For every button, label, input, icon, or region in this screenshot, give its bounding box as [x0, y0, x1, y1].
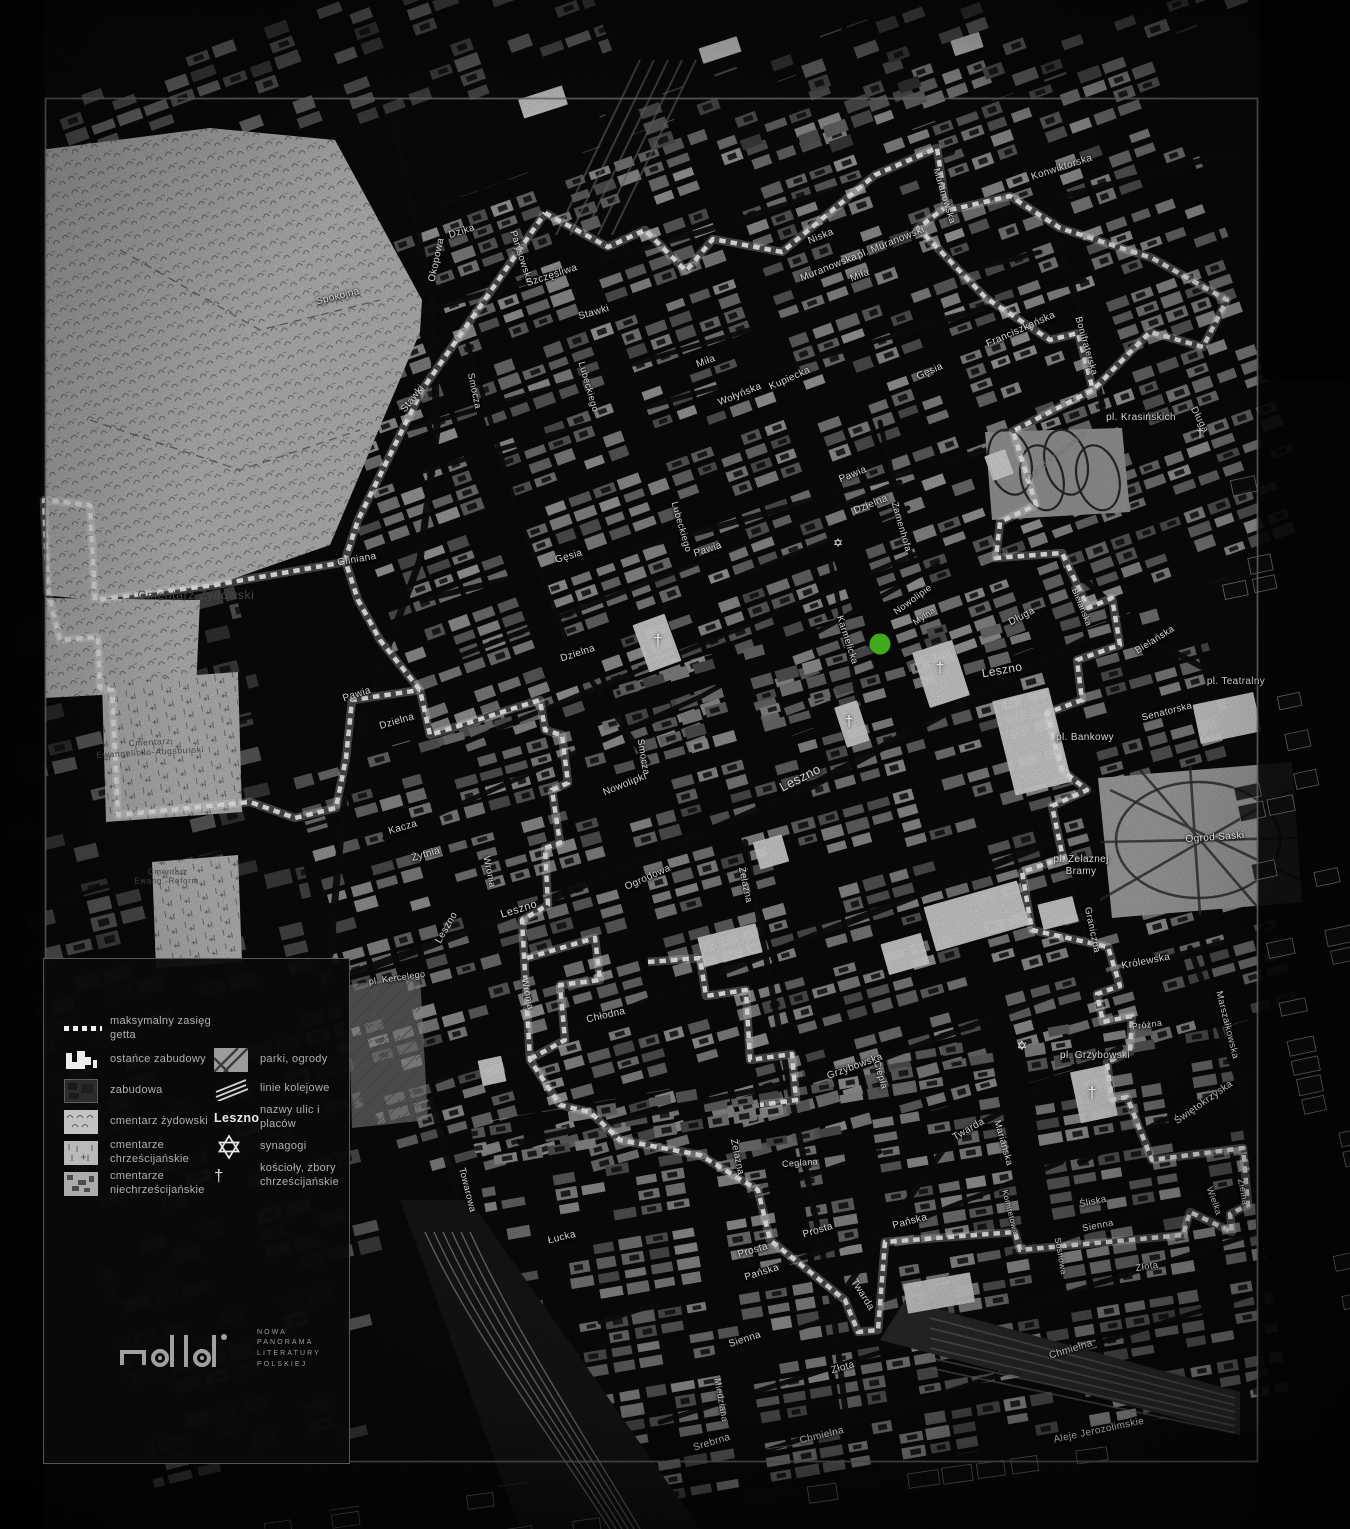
- legend-label-left-0: maksymalny zasięg getta: [110, 1015, 214, 1041]
- street-label: Stawki: [399, 383, 428, 415]
- area-label: Cmentarz Ewangelicko-Augsburski: [96, 734, 205, 760]
- street-label: Karmelicka: [834, 614, 860, 665]
- street-label: Pawia: [837, 464, 868, 486]
- church-icon: †: [845, 714, 853, 731]
- street-label: Nowolipki: [601, 771, 648, 799]
- synagogue-icon: [214, 1133, 260, 1161]
- street-label: Długa: [1007, 605, 1037, 629]
- street-label: pl. Muranowski: [856, 224, 927, 262]
- street-label: Leszno: [981, 659, 1024, 680]
- street-label: Próżna: [1131, 1018, 1163, 1033]
- non-christian-cemeteries-icon: [64, 1172, 110, 1196]
- area-label: Cmentarz Ewang.-Reform.: [134, 868, 202, 887]
- street-label: Chmielna: [1048, 1338, 1095, 1362]
- legend-item-christian-cemeteries: cmentarze chrześcijańskie: [64, 1137, 214, 1168]
- church-icon: †: [936, 660, 944, 677]
- ruin-building-icon: [64, 1047, 110, 1073]
- street-label: Leszno: [433, 910, 460, 946]
- street-sample-icon: Leszno: [214, 1111, 260, 1125]
- street-label: Dzika: [447, 222, 476, 241]
- street-label: Gęsia: [915, 361, 945, 383]
- street-label: Ceglana: [782, 1156, 819, 1169]
- legend-column-right: parki, ogrodylinie kolejoweLesznonazwy u…: [214, 1045, 348, 1190]
- street-label: Dzielna: [378, 711, 416, 732]
- church-icon: †: [1196, 426, 1203, 441]
- christian-cemeteries-icon: [64, 1141, 110, 1165]
- street-label: Leszno: [499, 898, 539, 921]
- legend-label-left-3: cmentarz żydowski: [110, 1115, 208, 1128]
- street-label: Szczęśliwa: [525, 262, 579, 290]
- street-label: Sienna: [1081, 1217, 1114, 1234]
- street-label: Ogrodowa: [623, 863, 673, 894]
- street-label: Kacza: [387, 818, 419, 837]
- street-label: Żelazna: [736, 866, 754, 904]
- street-label: Królewska: [1121, 952, 1172, 973]
- street-label: pl. Żelaznej Bramy: [1053, 854, 1108, 878]
- logo-line-3: LITERATURY: [257, 1350, 321, 1359]
- street-label: Prosta: [801, 1221, 834, 1241]
- street-label: Ogród Krasińskich: [1023, 428, 1089, 482]
- street-label: Złota: [1135, 1260, 1159, 1275]
- railways-icon: [214, 1077, 260, 1101]
- street-label: Twarda: [848, 1277, 877, 1313]
- synagogue-icon: ✡: [1017, 1038, 1028, 1054]
- street-label: Wielka: [1204, 1186, 1224, 1217]
- street-label: Nowolipie: [892, 582, 934, 617]
- legend-label-left-4: cmentarze chrześcijańskie: [110, 1139, 214, 1165]
- street-label: Zielna: [1235, 1178, 1250, 1206]
- street-label: Mylna: [911, 605, 937, 627]
- jewish-cemetery-icon: [64, 1110, 110, 1134]
- legend-label-right-1: linie kolejowe: [260, 1082, 330, 1095]
- street-label: Pańska: [891, 1212, 928, 1233]
- street-label: Grzybowska: [825, 1051, 884, 1082]
- street-label: Leszno: [777, 761, 823, 795]
- legend-label-left-5: cmentarze niechrześcijańskie: [110, 1170, 214, 1196]
- street-label: Gęsia: [554, 547, 584, 566]
- legend-item-ruin-building: ostańce zabudowy: [64, 1044, 214, 1075]
- street-label: Żelazna: [728, 1138, 746, 1176]
- street-label: Łucka: [547, 1229, 577, 1247]
- street-label: Franciszkańska: [985, 309, 1058, 350]
- legend-item-synagogue: synagogi: [214, 1132, 348, 1161]
- street-label: Bonifraterska: [1072, 315, 1099, 376]
- street-label: Wołyńska: [716, 381, 763, 409]
- street-label: Stawki: [577, 303, 611, 323]
- synagogue-icon: ✡: [833, 536, 843, 550]
- ghetto-line-icon: [64, 1026, 110, 1031]
- street-label: Parysowska: [507, 229, 535, 285]
- street-label: Miła: [849, 267, 872, 285]
- street-label: Lubeckiego: [575, 360, 600, 413]
- street-label: Smocza: [634, 738, 651, 776]
- church-icon: †: [214, 1167, 260, 1184]
- street-label: Pawia: [341, 685, 372, 705]
- street-label: Żytnia: [410, 845, 441, 864]
- street-label: Komitetowa: [1000, 1189, 1020, 1235]
- street-label: Spokojna: [315, 286, 361, 308]
- logo-line-4: POLSKIEJ: [257, 1361, 321, 1370]
- logo-line-1: NOWA: [257, 1329, 321, 1338]
- street-name-sample: Leszno: [214, 1111, 259, 1125]
- street-label: Chmielna: [799, 1425, 846, 1447]
- street-label: Senatorska: [1141, 700, 1194, 723]
- logo-line-2: PANORAMA: [257, 1339, 321, 1348]
- street-label: Okopowa: [427, 237, 448, 283]
- street-label: pl. Grzybowski: [1060, 1050, 1130, 1062]
- street-label: Muranowska: [799, 251, 859, 284]
- street-label: Srebrna: [692, 1432, 732, 1454]
- legend-label-left-2: zabudowa: [110, 1084, 163, 1097]
- street-label: Gliniana: [337, 551, 378, 569]
- legend-item-church: †kościoły, zbory chrześcijańskie: [214, 1161, 348, 1190]
- street-label: Pawia: [692, 540, 723, 560]
- legend-item-non-christian-cemeteries: cmentarze niechrześcijańskie: [64, 1168, 214, 1199]
- street-label: pl. Bankowy: [1056, 732, 1114, 744]
- street-label: Wronia: [480, 855, 498, 889]
- street-label: Chłodna: [585, 1006, 626, 1026]
- map-canvas: DzikaOkopowaSpokojnaParysowskaSzczęśliwa…: [0, 0, 1350, 1529]
- street-label: Miła: [695, 353, 718, 371]
- nplp-logo-text: NOWA PANORAMA LITERATURY POLSKIEJ: [257, 1329, 321, 1370]
- street-label: Niska: [806, 227, 835, 248]
- street-label: Zamenhofa: [889, 501, 914, 553]
- nplp-logo-glyphs: [118, 1325, 243, 1373]
- nplp-logo: NOWA PANORAMA LITERATURY POLSKIEJ: [118, 1325, 321, 1373]
- legend-label-right-2: nazwy ulic i placów: [260, 1104, 348, 1130]
- street-label: Twarda: [951, 1116, 987, 1144]
- street-label: Marszałkowska: [1213, 990, 1241, 1060]
- street-label: Muranowska: [930, 167, 957, 225]
- street-label: Długa: [1187, 405, 1211, 435]
- green-location-marker[interactable]: [870, 634, 891, 655]
- street-label: Złota: [830, 1359, 856, 1377]
- street-label: pl. Teatralny: [1207, 676, 1265, 688]
- legend-item-built-up: zabudowa: [64, 1075, 214, 1106]
- street-label: Kupiecka: [768, 365, 813, 394]
- street-label: Ciepła: [871, 1059, 890, 1090]
- street-label: Dzielna: [559, 643, 597, 665]
- legend-item-railways: linie kolejowe: [214, 1074, 348, 1103]
- legend-item-parks: parki, ogrody: [214, 1045, 348, 1074]
- street-label: Bielańska: [1133, 624, 1177, 657]
- legend-label-right-3: synagogi: [260, 1140, 306, 1153]
- street-label: Aleje Jerozolimskie: [1053, 1416, 1146, 1447]
- street-label: Bielańska: [1070, 587, 1094, 628]
- street-label: pl. Krasińskich: [1106, 412, 1176, 424]
- street-label: Miedziana: [712, 1377, 730, 1422]
- legend-label-right-4: kościoły, zbory chrześcijańskie: [260, 1162, 348, 1188]
- street-label: Dzielna: [852, 493, 890, 517]
- built-up-icon: [64, 1079, 110, 1103]
- street-label: Pańska: [743, 1262, 780, 1284]
- church-icon: †: [653, 631, 662, 651]
- street-label: pl. Kercelego: [368, 969, 426, 987]
- street-label: Sienna: [727, 1329, 762, 1350]
- street-label: Konwiktorska: [1030, 153, 1094, 184]
- street-label: Towarowa: [456, 1167, 478, 1214]
- street-label: Smocza: [465, 372, 484, 410]
- legend-item-street-sample: Lesznonazwy ulic i placów: [214, 1103, 348, 1132]
- street-label: Wronia: [518, 977, 536, 1011]
- legend-panel: maksymalny zasięg gettaostańce zabudowyz…: [43, 958, 350, 1464]
- street-label: Prosta: [736, 1241, 769, 1261]
- legend-label-right-0: parki, ogrody: [260, 1053, 328, 1066]
- street-label: Śliska: [1078, 1194, 1107, 1210]
- legend-item-ghetto-line: maksymalny zasięg getta: [64, 1013, 214, 1044]
- street-label: Mariańska: [991, 1119, 1015, 1167]
- street-label: Lubeckiego: [668, 500, 693, 553]
- legend-column-left: maksymalny zasięg gettaostańce zabudowyz…: [64, 1013, 214, 1199]
- street-label: Sosnowa: [1053, 1237, 1069, 1276]
- parks-icon: [214, 1048, 260, 1072]
- street-label: Graniczna: [1082, 906, 1103, 954]
- area-label: Cmentarz Żydowski: [137, 588, 254, 602]
- church-icon: †: [1087, 1083, 1096, 1103]
- street-label: Ogród Saski: [1185, 830, 1245, 846]
- street-label: Świętokrzyska: [1173, 1079, 1236, 1128]
- legend-item-jewish-cemetery: cmentarz żydowski: [64, 1106, 214, 1137]
- legend-label-left-1: ostańce zabudowy: [110, 1053, 206, 1066]
